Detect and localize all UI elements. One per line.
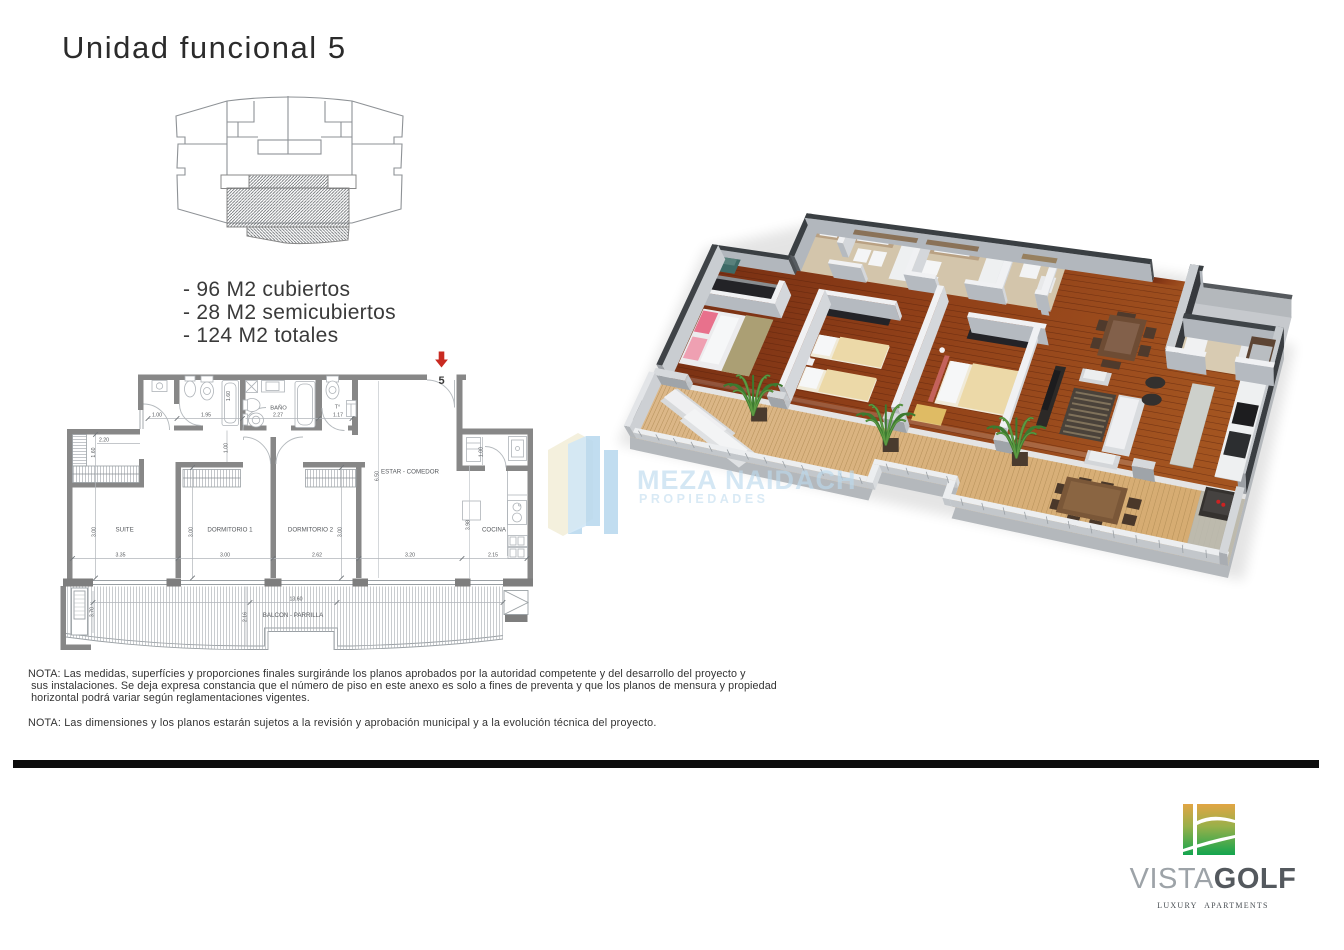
svg-text:13.60: 13.60: [290, 597, 303, 603]
svg-text:1.95: 1.95: [201, 413, 211, 419]
svg-text:3.20: 3.20: [405, 553, 415, 559]
svg-text:2.27: 2.27: [273, 413, 283, 419]
svg-text:1.00: 1.00: [224, 443, 230, 453]
svg-text:COCINA: COCINA: [482, 527, 507, 534]
svg-text:3.00: 3.00: [338, 527, 344, 537]
svg-text:1.17: 1.17: [333, 413, 343, 419]
svg-text:3.00: 3.00: [220, 553, 230, 559]
svg-text:1.60: 1.60: [91, 447, 97, 457]
svg-text:2.62: 2.62: [312, 553, 322, 559]
svg-text:3.00: 3.00: [189, 527, 195, 537]
svg-text:PROPIEDADES: PROPIEDADES: [639, 492, 769, 506]
svg-text:BALCON - PARRILLA: BALCON - PARRILLA: [263, 612, 324, 619]
svg-text:3.00: 3.00: [92, 527, 98, 537]
svg-text:SUITE: SUITE: [115, 527, 133, 534]
svg-text:MEZA NAIDACH: MEZA NAIDACH: [637, 465, 856, 495]
svg-text:1.60: 1.60: [226, 391, 232, 401]
svg-text:1.00: 1.00: [479, 447, 485, 457]
svg-text:ESTAR - COMEDOR: ESTAR - COMEDOR: [381, 469, 440, 476]
svg-text:5: 5: [438, 375, 444, 387]
svg-text:DORMITORIO 1: DORMITORIO 1: [207, 527, 253, 534]
svg-text:2.16: 2.16: [243, 612, 249, 622]
svg-text:BAÑO: BAÑO: [270, 405, 287, 412]
svg-text:DORMITORIO 2: DORMITORIO 2: [288, 527, 334, 534]
svg-text:3.98: 3.98: [466, 520, 472, 530]
svg-text:T°: T°: [335, 405, 340, 411]
svg-text:3.35: 3.35: [115, 553, 125, 559]
svg-text:3.70: 3.70: [90, 607, 96, 617]
svg-text:2.15: 2.15: [488, 553, 498, 559]
svg-text:6.50: 6.50: [375, 471, 381, 481]
svg-text:1.00: 1.00: [152, 413, 162, 419]
svg-text:2.20: 2.20: [99, 438, 109, 444]
